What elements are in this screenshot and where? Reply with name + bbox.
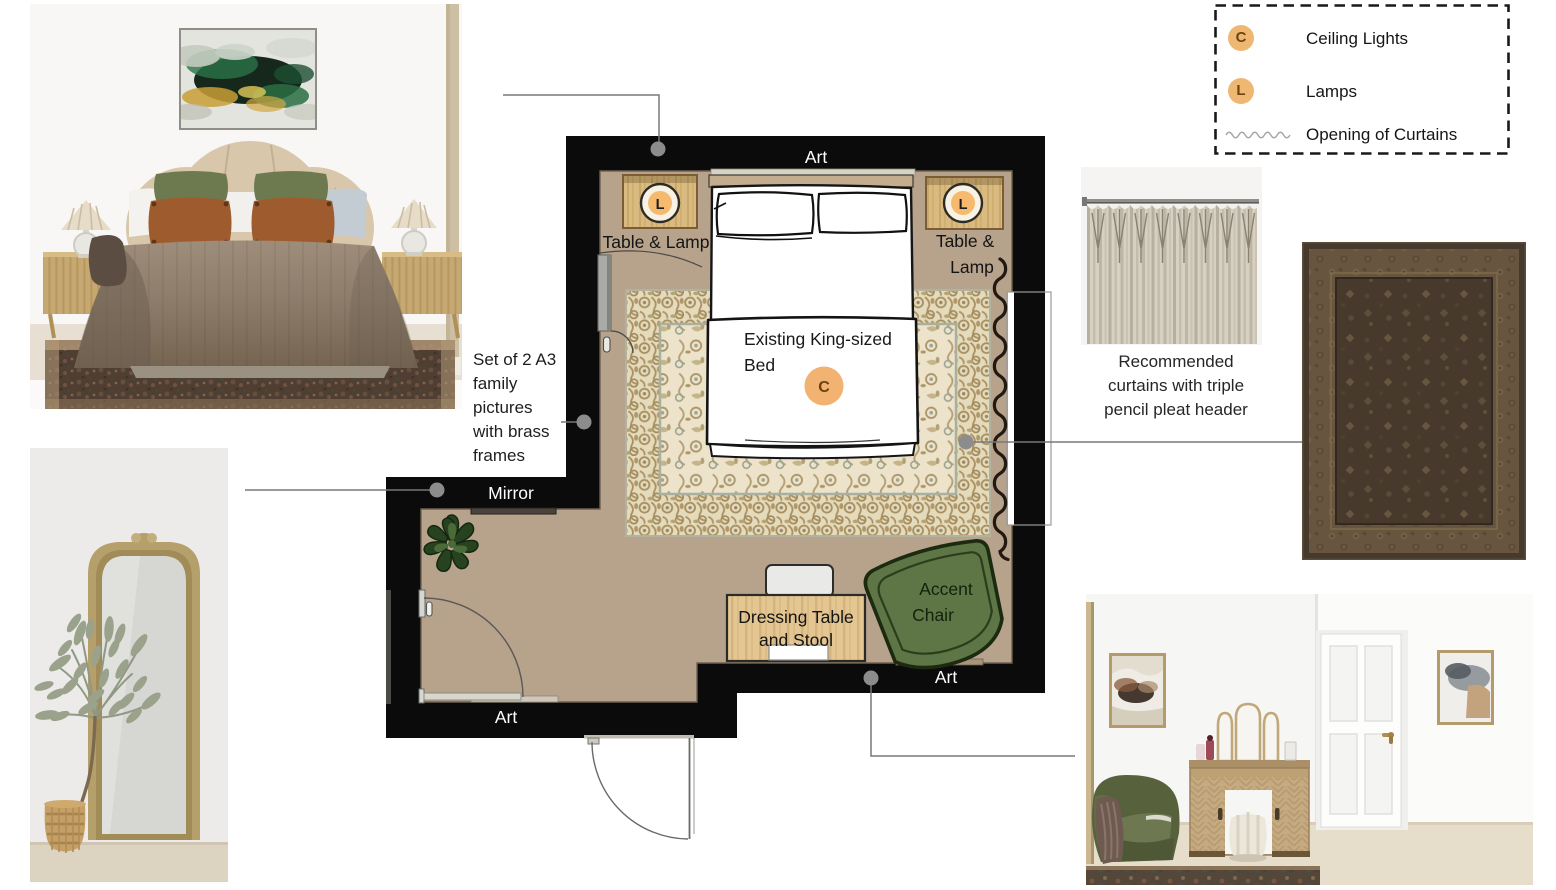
svg-text:Art: Art xyxy=(805,147,828,167)
svg-text:Art: Art xyxy=(495,707,518,727)
svg-text:Art: Art xyxy=(935,667,958,687)
svg-text:Accent: Accent xyxy=(919,579,973,599)
svg-text:L: L xyxy=(656,197,665,213)
svg-text:and Stool: and Stool xyxy=(759,630,833,650)
svg-text:C: C xyxy=(818,379,830,396)
svg-text:L: L xyxy=(959,197,968,213)
svg-text:Chair: Chair xyxy=(912,605,954,625)
svg-text:Dressing Table: Dressing Table xyxy=(738,607,853,627)
svg-text:Table & Lamp: Table & Lamp xyxy=(602,232,709,252)
svg-text:Table &: Table & xyxy=(936,231,995,251)
svg-text:Bed: Bed xyxy=(744,355,775,375)
svg-text:Lamp: Lamp xyxy=(950,257,994,277)
svg-text:Existing King-sized: Existing King-sized xyxy=(744,329,892,349)
svg-text:Mirror: Mirror xyxy=(488,483,534,503)
